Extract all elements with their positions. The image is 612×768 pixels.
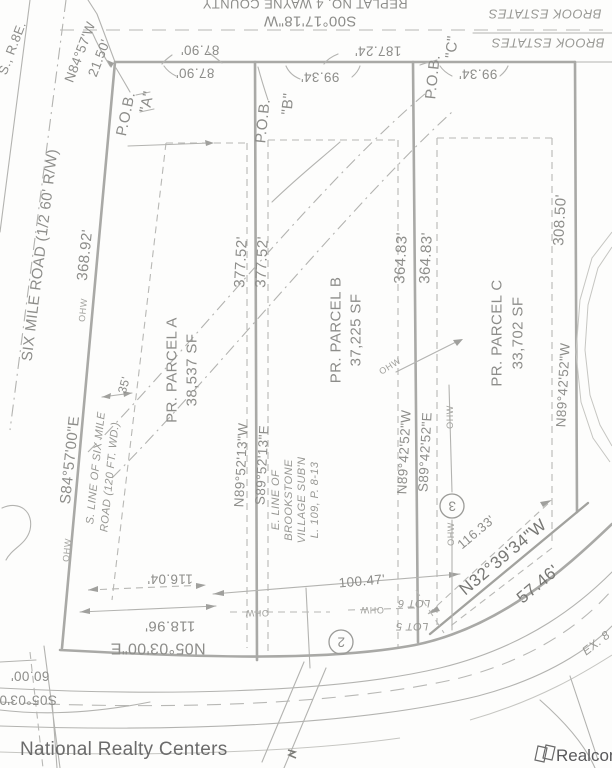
bearing-s05-03: S05°03'0 <box>0 693 57 708</box>
curve-number-3: 3 <box>448 499 456 514</box>
dim-377-52: 377.52' <box>252 236 272 288</box>
ohw-label: OHW <box>446 522 456 546</box>
dim-118-96: 118.96' <box>145 618 195 635</box>
bearing-n89-42-52-w: N89°42'52"W <box>553 342 572 427</box>
ohw-label: OHW <box>77 298 89 323</box>
parcel-a-name: PR. PARCEL A <box>164 317 181 423</box>
dim-116-33: 116.33' <box>454 512 497 552</box>
parcel-a-area: 38,537 SF <box>184 334 201 407</box>
realcomp-flag-icon <box>535 745 555 762</box>
parcel-bc-line <box>413 62 418 642</box>
ex-road-label: EX. 8 <box>579 628 612 658</box>
bearing-s00-17-18-w: S00°17'18"W <box>263 13 356 30</box>
dim-308-50: 308.50' <box>550 194 570 246</box>
brook-estates-label: BROOK ESTATES <box>488 7 601 22</box>
dim-364-83: 364.83' <box>416 232 436 284</box>
dim-116-04: 116.04' <box>147 572 193 587</box>
parcel-c-name: PR. PARCEL C <box>489 279 506 386</box>
bearing-n05-03-00-e: N05°03'00"E <box>110 640 205 657</box>
survey-plat-sheet: REPLAT NO. 4 WAYNE COUNTY S00°17'18"W BR… <box>0 0 612 768</box>
dim-100-47-line <box>213 574 460 594</box>
bearing-s89-42-52-e: S89°42'52"E <box>415 412 434 493</box>
lot-6-label: LOT 6 <box>397 597 430 609</box>
ohw-label: OHW <box>445 405 455 429</box>
pob-label: P.O.B. <box>252 98 274 144</box>
feature-outline-inner <box>585 247 612 446</box>
ohw-label: OHW <box>377 355 402 376</box>
parcel-ab-line <box>255 62 257 660</box>
bearing-n89-52-13-w: N89°52'13"W <box>231 422 250 507</box>
pob-leaders <box>92 32 437 100</box>
dim-364-83: 364.83' <box>391 232 411 284</box>
watermark-realcomp: Realcomp <box>556 746 612 765</box>
lot-5-label: LOT 5 <box>395 620 428 632</box>
dim-60-00: 60.00' <box>11 669 50 684</box>
watermark-national-realty-centers: National Realty Centers <box>20 739 228 760</box>
ohw-label: OHW <box>360 605 384 615</box>
curve-number-2: 2 <box>337 635 345 650</box>
e-line-note-3: VILLAGE SUB'N <box>296 457 308 544</box>
dim-57-46: 57.46' <box>513 561 563 607</box>
e-line-note-4: L. 109, P. 8-13 <box>309 461 321 538</box>
e-line-note-1: E. LINE OF <box>270 469 282 530</box>
survey-plat-drawing: REPLAT NO. 4 WAYNE COUNTY S00°17'18"W BR… <box>0 0 612 768</box>
dim-87-90: 87.90' <box>176 66 215 81</box>
section-note: S., R.8E. <box>0 19 29 76</box>
pob-c-label: "C" <box>442 35 461 59</box>
pob-label: P.O.B. <box>422 54 444 100</box>
dim-100-47: 100.47' <box>338 571 386 590</box>
south-road-line-3 <box>0 626 612 728</box>
dim-368-92: 368.92' <box>74 228 96 281</box>
arrowhead <box>107 60 114 68</box>
parcel-c-area: 33,702 SF <box>510 297 527 370</box>
dim-187-24: 187.24' <box>355 44 402 59</box>
dim-377-52: 377.52' <box>231 236 251 288</box>
pob-b-label: "B" <box>278 92 297 116</box>
dim-99-34: 99.34' <box>301 70 340 85</box>
bearing-s89-52-13-e: S89°52'13"E <box>252 425 271 506</box>
south-road-dashed <box>0 590 612 706</box>
parcel-b-name: PR. PARCEL B <box>328 277 345 384</box>
bearing-n89-42-52-w: N89°42'52"W <box>394 409 413 494</box>
feature-outline <box>576 232 612 462</box>
brook-estates-label: BROOK ESTATES <box>491 36 604 51</box>
pob-a-label: "A" <box>136 90 157 115</box>
pob-label: P.O.B. <box>113 90 139 137</box>
east-boundary <box>575 62 577 512</box>
ohw-curve <box>272 142 340 202</box>
e-line-note-2: BROOKSTONE <box>283 459 295 541</box>
road-squiggle <box>2 505 31 560</box>
dim-99-34: 99.34' <box>459 67 498 82</box>
ohw-label: OHW <box>245 608 269 618</box>
parcel-b-area: 37,225 SF <box>348 294 365 367</box>
arrowhead <box>205 140 214 146</box>
dim-87-90: 87.90' <box>181 43 220 58</box>
dim-118-96-line <box>80 606 216 612</box>
ohw-leader-diagonal <box>396 340 460 372</box>
plat-note: REPLAT NO. 4 WAYNE COUNTY <box>202 0 407 12</box>
dim-35: 35' <box>115 375 133 395</box>
six-mile-road-label: SIX MILE ROAD (1/2 60' R/W) <box>19 148 62 362</box>
